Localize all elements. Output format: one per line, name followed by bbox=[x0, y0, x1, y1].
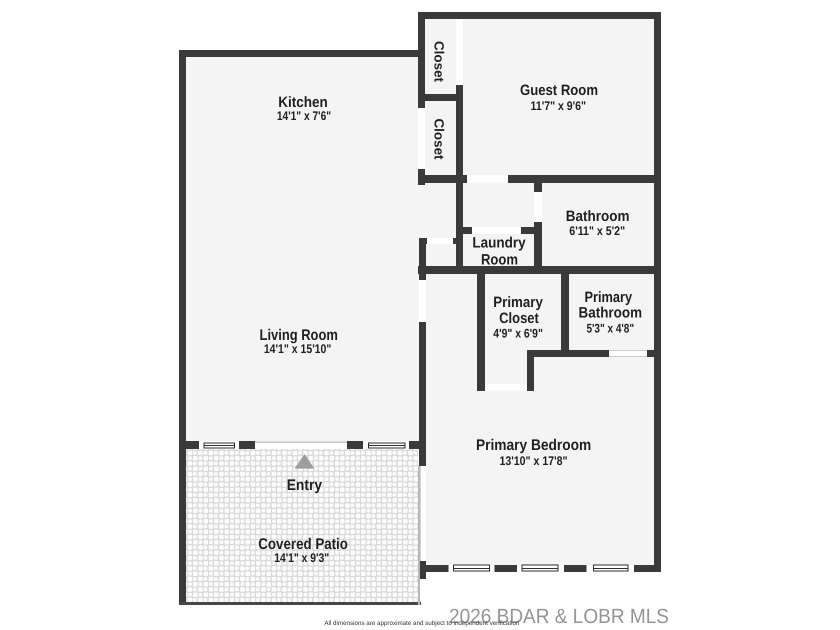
svg-text:Closet: Closet bbox=[432, 41, 447, 82]
svg-text:All dimensions are approximate: All dimensions are approximate and subje… bbox=[324, 620, 519, 627]
svg-text:5'3" x 4'8": 5'3" x 4'8" bbox=[587, 322, 635, 336]
svg-text:14'1" x 15'10": 14'1" x 15'10" bbox=[264, 342, 332, 356]
svg-text:Primary Bedroom: Primary Bedroom bbox=[476, 437, 591, 454]
svg-text:Room: Room bbox=[481, 252, 518, 269]
svg-text:Bathroom: Bathroom bbox=[566, 208, 630, 225]
svg-text:14'1" x 9'3": 14'1" x 9'3" bbox=[274, 551, 329, 565]
svg-text:Closet: Closet bbox=[432, 119, 447, 160]
svg-text:Bathroom: Bathroom bbox=[579, 305, 643, 322]
svg-text:4'9" x 6'9": 4'9" x 6'9" bbox=[493, 327, 543, 341]
svg-text:Entry: Entry bbox=[287, 477, 323, 494]
svg-text:11'7" x 9'6": 11'7" x 9'6" bbox=[531, 99, 587, 113]
svg-text:Guest Room: Guest Room bbox=[520, 82, 598, 99]
svg-text:Primary: Primary bbox=[493, 294, 543, 311]
svg-text:Closet: Closet bbox=[499, 310, 539, 327]
svg-text:13'10" x 17'8": 13'10" x 17'8" bbox=[499, 454, 567, 468]
svg-text:6'11" x 5'2": 6'11" x 5'2" bbox=[569, 224, 625, 238]
svg-text:Primary: Primary bbox=[585, 289, 633, 306]
svg-text:14'1" x 7'6": 14'1" x 7'6" bbox=[277, 109, 331, 123]
svg-text:Laundry: Laundry bbox=[472, 235, 526, 252]
